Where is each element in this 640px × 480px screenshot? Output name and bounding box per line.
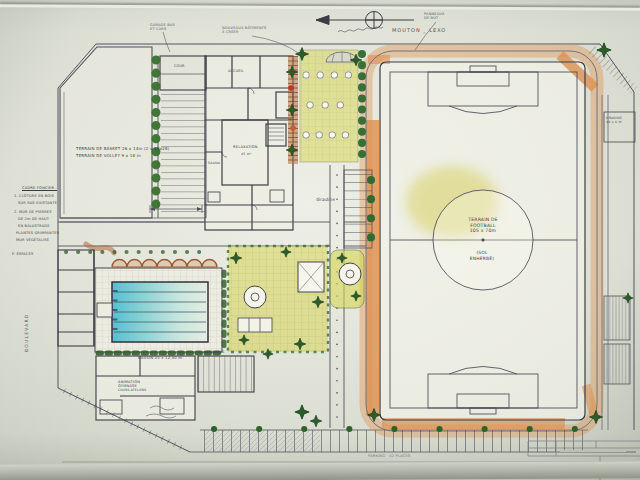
field-circle-label2: (SOL ENHERBÉ) [452,250,512,261]
margin-note-5: EN BALUSTRADE [18,224,50,228]
room-relaxation: RELAXATION [233,145,258,149]
fountain [339,263,361,285]
gradins-cursive: Gradins [316,197,335,203]
label-terrain-volley: TERRAIN DE VOLLEY 9 x 18 m [76,153,141,158]
site-plan-photo: TERRAIN DE BASKET 26 x 14m (2 u 15x28) T… [0,0,640,480]
margin-note-4: DE 2m DE HAUT [18,217,49,221]
margin-note-2: SUR RUE EXISTANTE [18,201,57,205]
right-garden [228,246,328,352]
field-circle-label: TERRAIN DE FOOTBALL 105 x 70m [447,217,519,234]
flower-red [288,85,294,91]
margin-note-6: PLANTES GRIMPANTES [16,231,59,235]
note-panneaux: PANNEAUX DE BUT [424,12,445,21]
vestiaires-label: VESTIAIRES [204,350,224,354]
note-garage-2: ET CARS [150,27,175,31]
spa-pool [244,286,266,308]
gym-label: ANIMATION GYMNASE COURS ATELIERS [118,380,146,393]
stands-label-2: 40 x 6 m [606,120,622,124]
gym-label-3: COURS ATELIERS [118,389,146,393]
margin-note-0: CADRE FONCIER : [22,186,57,190]
margin-note-1: 1. CLÔTURE EN BOIS [14,194,54,198]
label-terrain-basket: TERRAIN DE BASKET 26 x 14m (2 u 15x28) [76,146,169,151]
parking-label: PARKING · 52 PLACES [368,454,410,458]
room-relaxation-area: 45 m² [241,152,251,156]
cabana-arches [112,260,217,267]
compass-note: MOUTON _ LEXO [392,27,446,33]
note-panneaux-2: DE BUT [424,16,445,20]
room-sauna: SAUNA [208,161,220,165]
plan-drawing [0,0,640,480]
bassin-label: BASSIN 25 x 12,50 m [138,356,182,361]
margin-note-7: MUR VÉGÉTALISÉ [16,238,49,242]
boulevard-label: BOULEVARD [24,314,30,352]
room-accueil: ACCUEIL [228,69,244,73]
stands-label: GRADINS 40 x 6 m [606,116,622,124]
pool-platform [97,303,112,317]
small-garden [330,250,364,308]
flower-orange [290,125,296,131]
field-label-line3: 105 x 70m [447,228,519,234]
steps-terraces [158,56,206,218]
note-garage: GARAGE BUS ET CARS [150,23,175,32]
room-cour: COUR [174,64,185,68]
note-nouveaux: NOUVEAUX BÂTIMENTS À CRÉER [222,26,267,35]
field-label-line5: ENHERBÉ) [452,256,512,262]
sheet-bottom-edge [0,461,640,480]
margin-note-3: 2. MUR DE PIERRES [14,210,52,214]
terrace-garden [300,50,362,164]
margin-note-8: P. ESPACES [12,252,33,256]
north-arrow-icon [316,12,414,29]
note-nouveaux-2: À CRÉER [222,30,267,34]
